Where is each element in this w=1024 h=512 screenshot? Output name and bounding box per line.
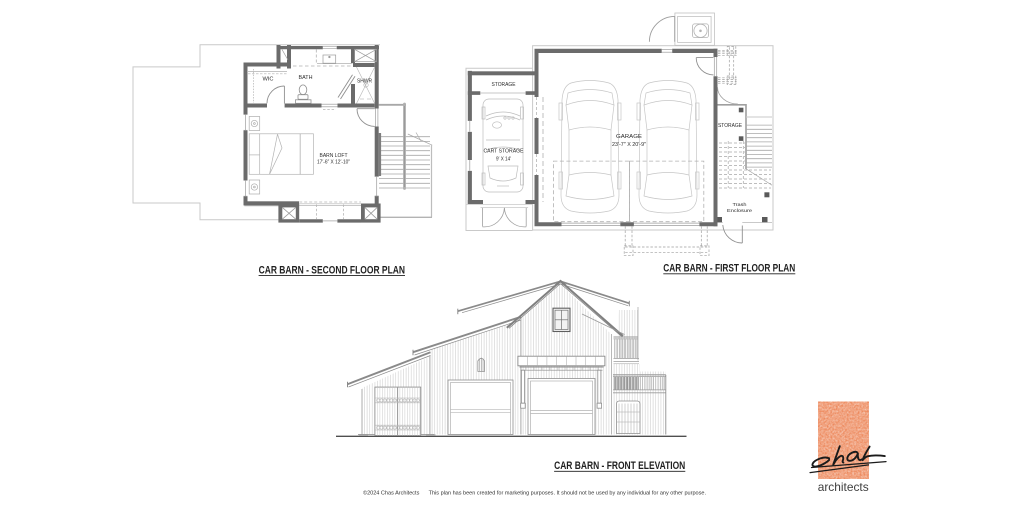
svg-text:17′-6″ X 12′-10″: 17′-6″ X 12′-10″ [317, 160, 350, 166]
svg-text:©2024 Chas Architects Thi: ©2024 Chas Architects This plan has been… [363, 490, 706, 497]
svg-text:BATH: BATH [299, 75, 313, 81]
svg-text:CAR BARN - FRONT ELEVATION: CAR BARN - FRONT ELEVATION [554, 460, 685, 472]
svg-text:23′-7″ X 20′-9″: 23′-7″ X 20′-9″ [612, 142, 646, 148]
svg-text:STORAGE: STORAGE [718, 123, 743, 129]
svg-text:CAR BARN - FIRST FLOOR PLAN: CAR BARN - FIRST FLOOR PLAN [663, 263, 795, 275]
svg-text:BARN LOFT: BARN LOFT [320, 153, 349, 159]
svg-text:STORAGE: STORAGE [492, 82, 517, 88]
svg-text:9′ X 14′: 9′ X 14′ [496, 157, 511, 163]
svg-text:GARAGE: GARAGE [616, 134, 642, 140]
svg-text:architects: architects [818, 480, 869, 494]
svg-text:WIC: WIC [263, 77, 274, 83]
svg-text:SHWR: SHWR [357, 79, 372, 85]
svg-text:CAR BARN - SECOND FLOOR PLAN: CAR BARN - SECOND FLOOR PLAN [259, 264, 405, 276]
svg-text:Enclosure: Enclosure [727, 208, 752, 214]
svg-text:Trash: Trash [733, 202, 747, 208]
svg-text:CART STORAGE: CART STORAGE [484, 149, 524, 155]
